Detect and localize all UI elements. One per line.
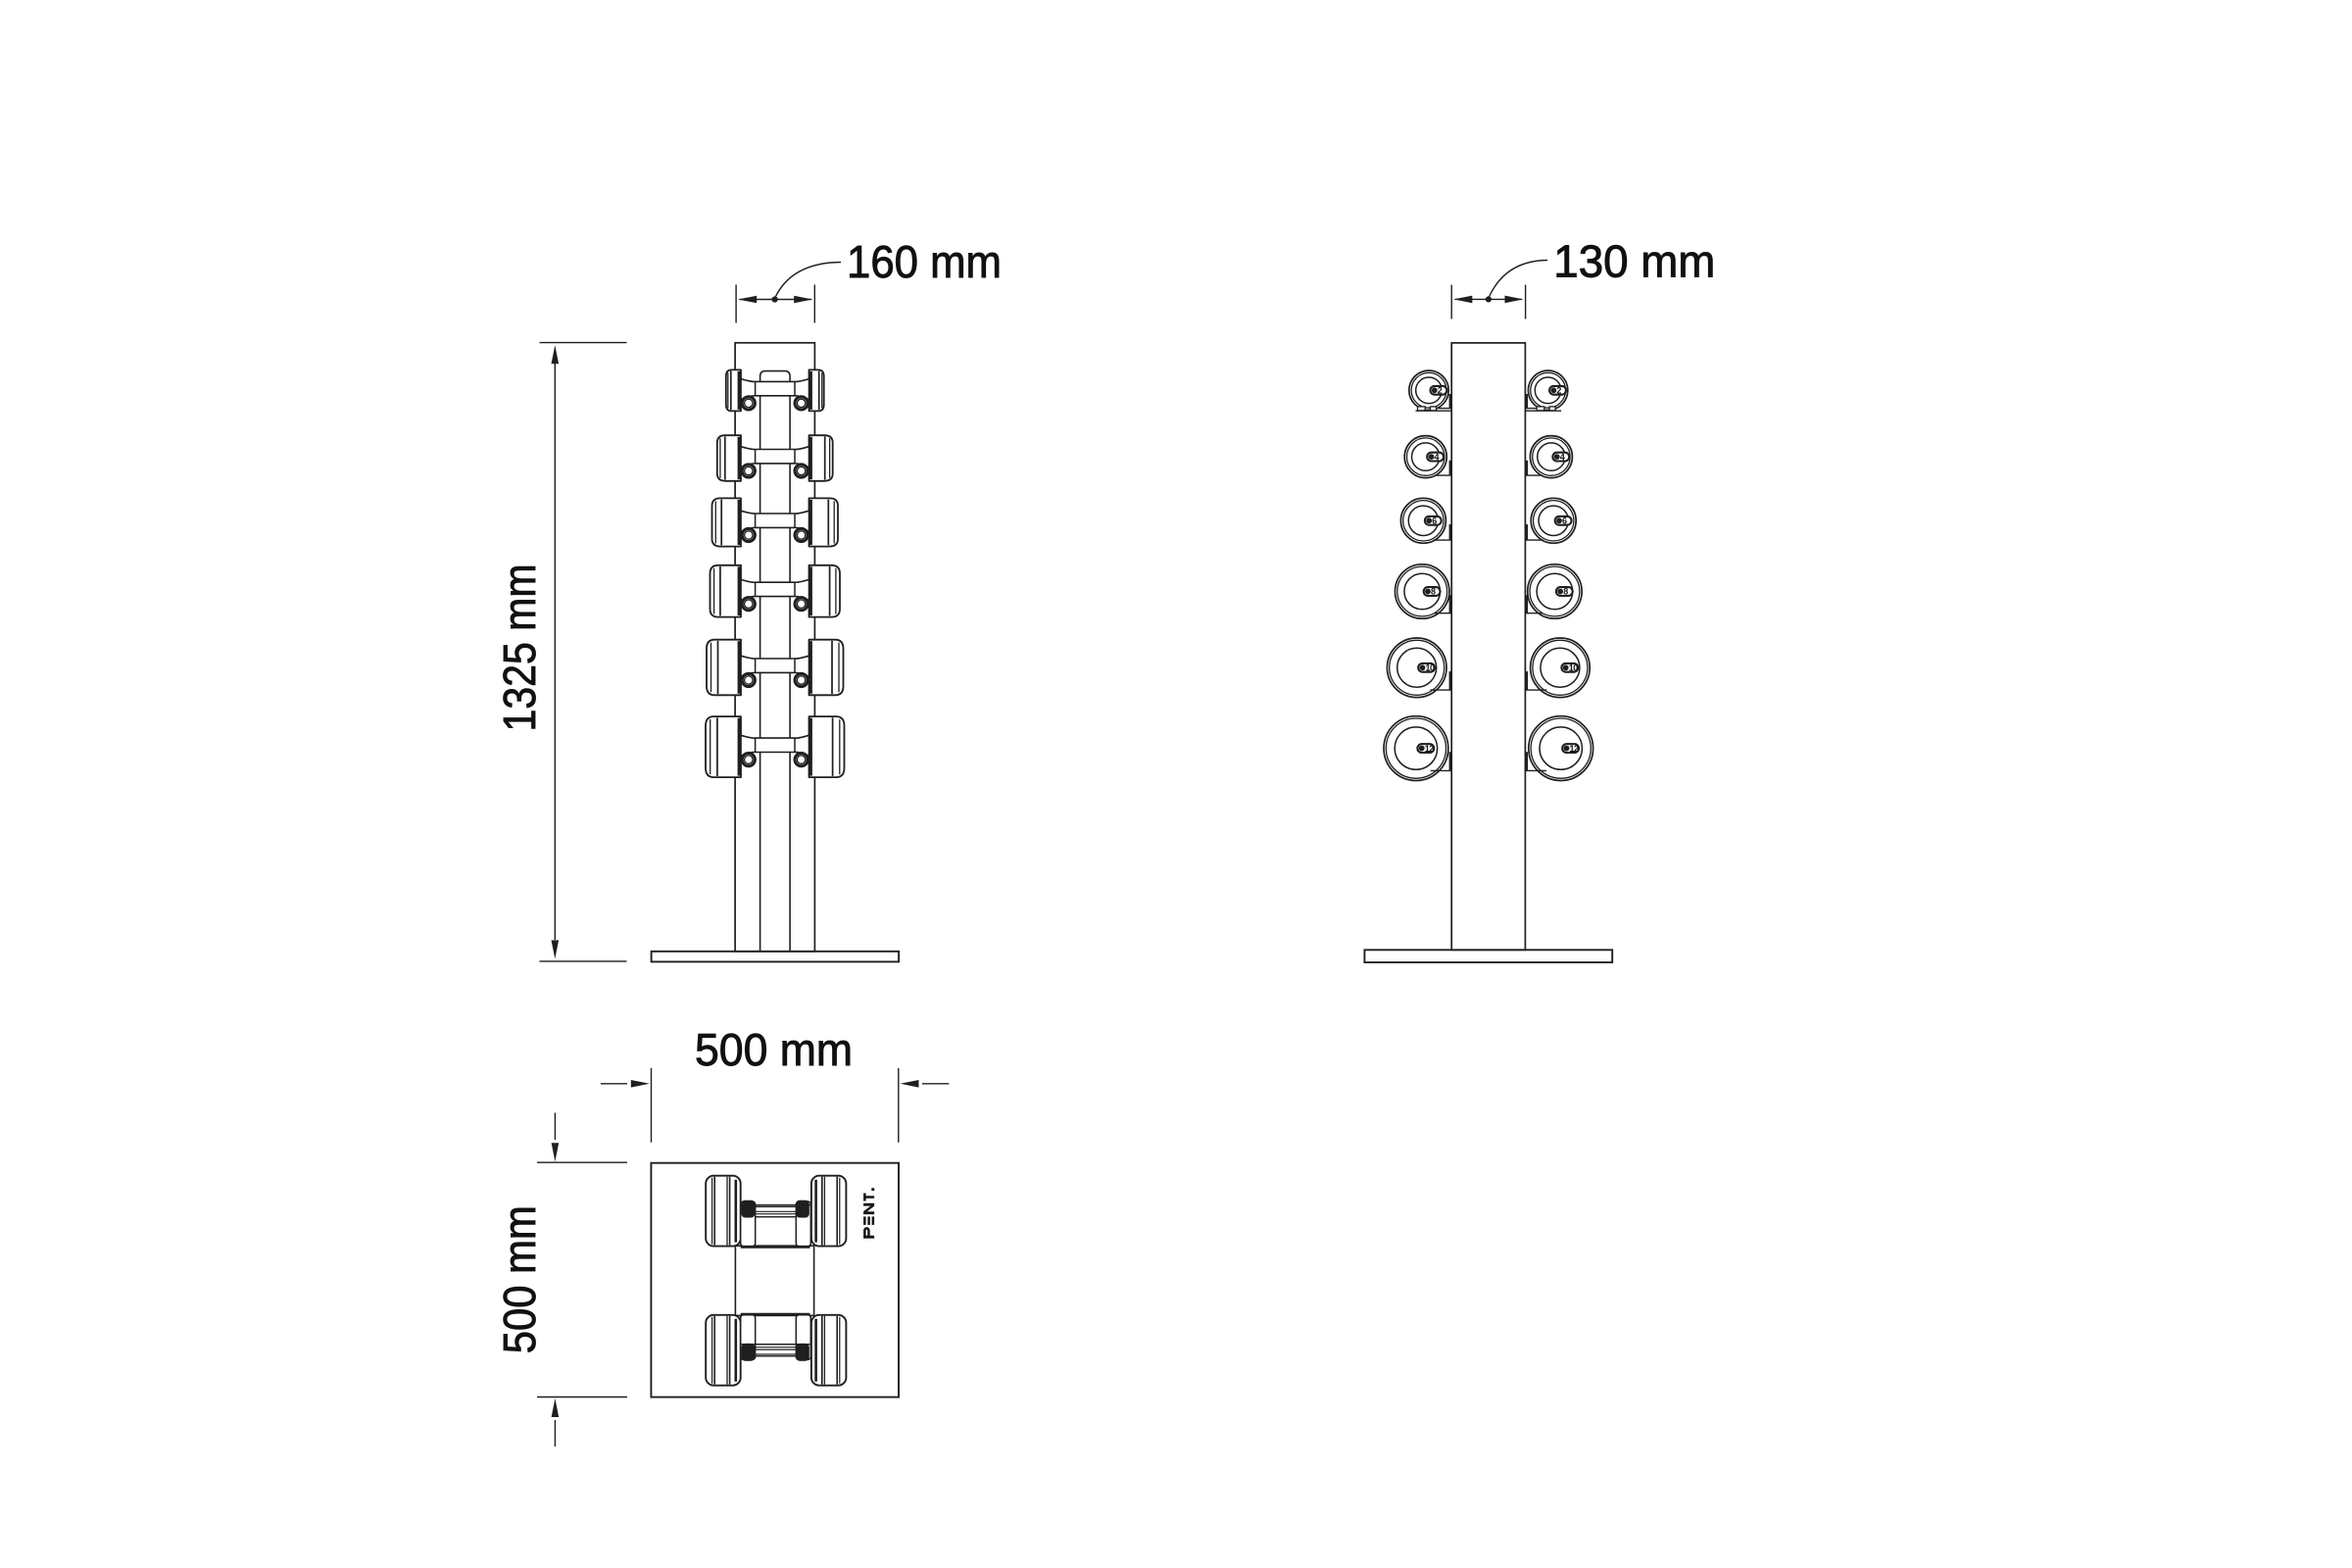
svg-text:2: 2 (1438, 386, 1443, 396)
svg-text:1325 mm: 1325 mm (494, 564, 545, 732)
svg-text:500 mm: 500 mm (494, 1205, 545, 1353)
svg-text:8: 8 (1563, 587, 1568, 597)
svg-text:8: 8 (1431, 587, 1436, 597)
svg-text:12: 12 (1570, 744, 1580, 754)
svg-text:6: 6 (1562, 516, 1567, 526)
svg-text:160 mm: 160 mm (847, 236, 1002, 287)
svg-text:10: 10 (1569, 663, 1579, 673)
svg-text:4: 4 (1560, 452, 1565, 462)
svg-text:12: 12 (1425, 744, 1435, 754)
svg-text:130 mm: 130 mm (1553, 236, 1715, 287)
svg-text:2: 2 (1556, 386, 1561, 396)
svg-text:10: 10 (1426, 663, 1436, 673)
svg-text:500 mm: 500 mm (695, 1024, 853, 1075)
svg-text:6: 6 (1432, 516, 1437, 526)
svg-text:4: 4 (1435, 452, 1440, 462)
